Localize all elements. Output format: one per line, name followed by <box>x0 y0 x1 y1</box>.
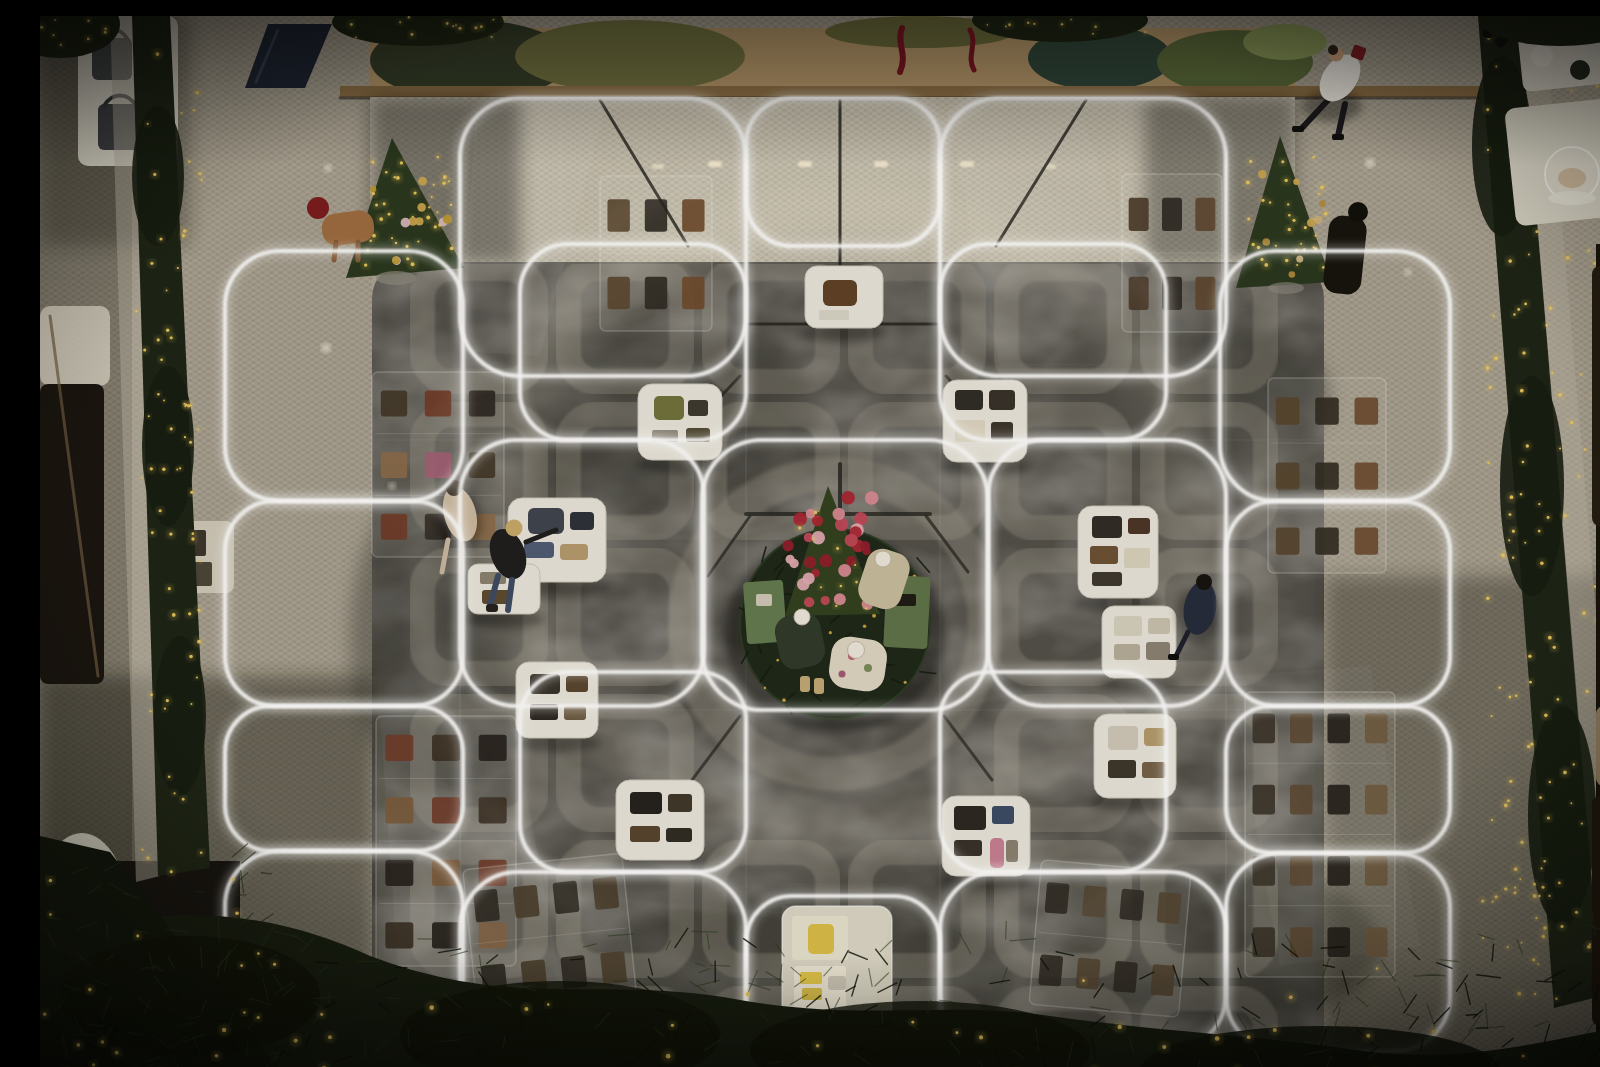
vignette-radial <box>40 16 1600 1067</box>
scene-canvas <box>40 16 1600 1067</box>
store-atrium-photo: Overhead view of a department store atri… <box>40 16 1600 1067</box>
layer-grade <box>40 16 1600 1067</box>
vignette-top <box>40 16 1600 166</box>
vignette-bottom <box>40 956 1600 1067</box>
